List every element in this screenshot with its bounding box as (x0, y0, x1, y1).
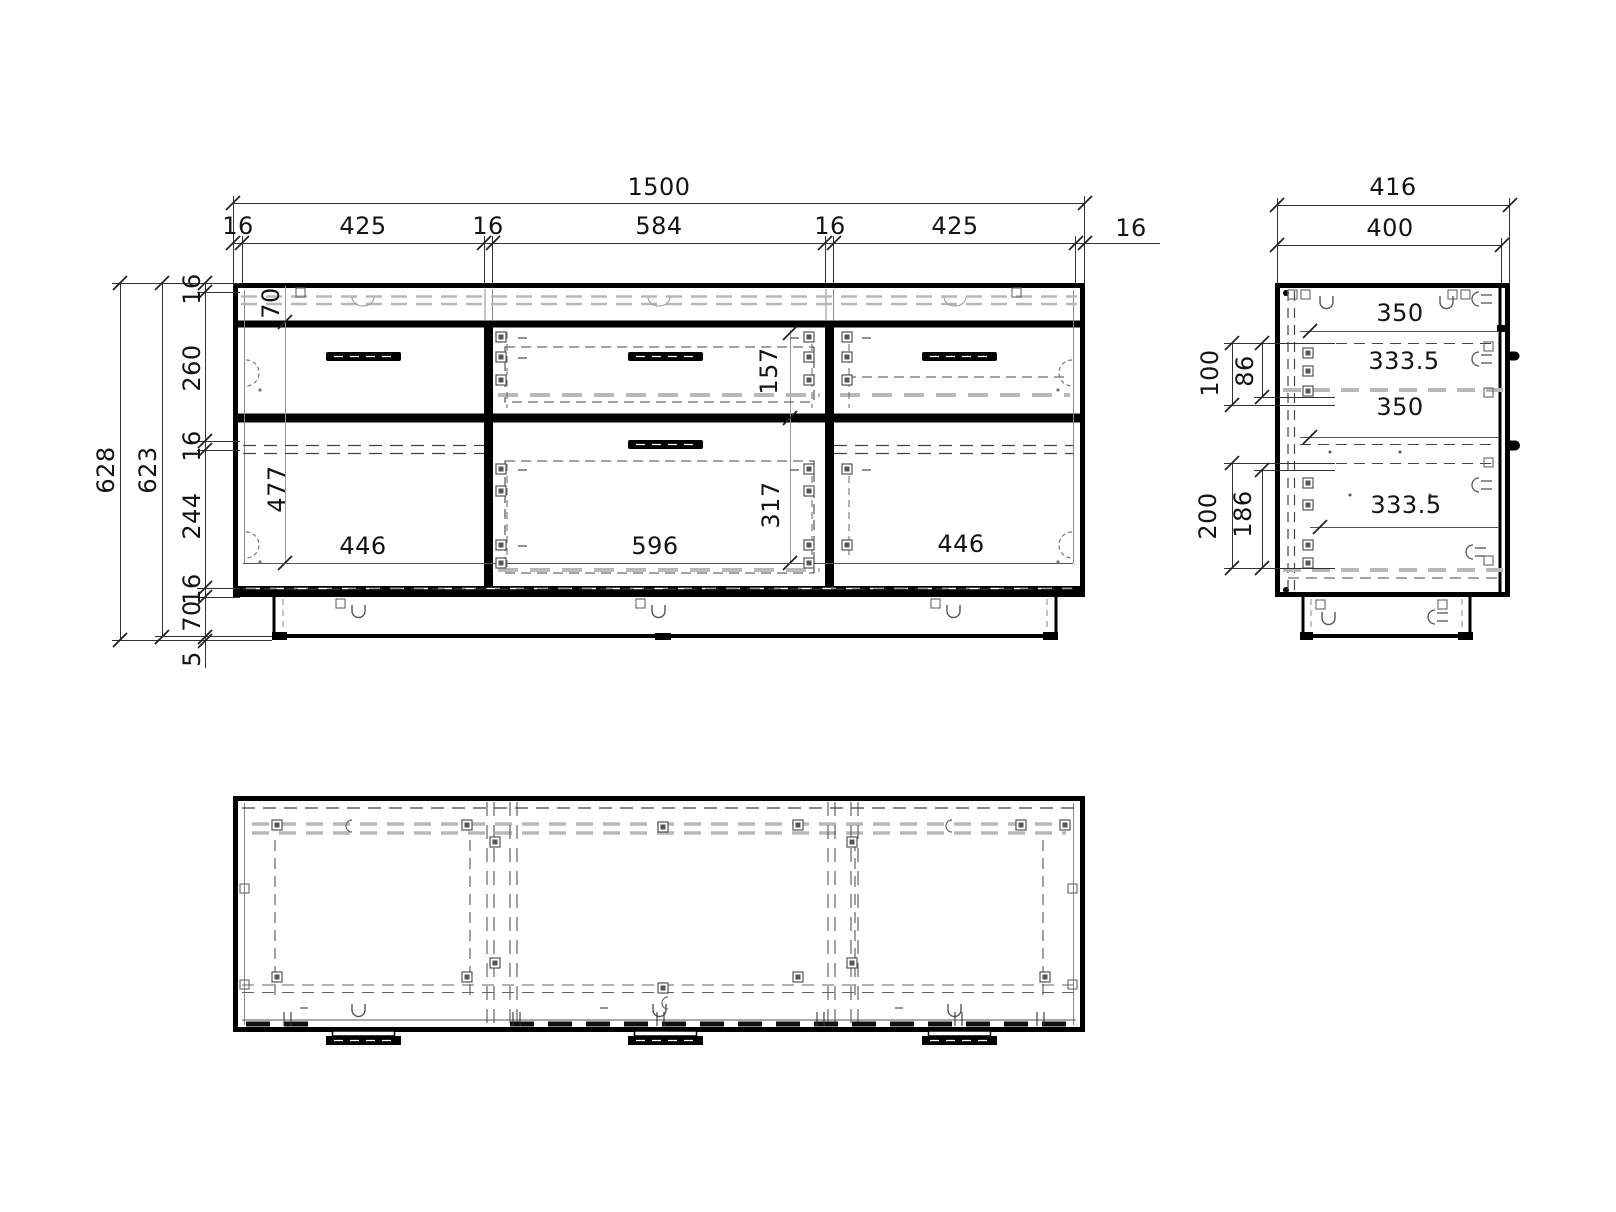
dim-front-seg-5: 425 (931, 214, 978, 238)
dim-front-hseg-2: 16 (180, 430, 204, 462)
dim-side-body-depth: 400 (1366, 216, 1413, 240)
side-plinth (1300, 597, 1473, 640)
dim-front-foot-height: 5 (180, 651, 204, 667)
furniture-technical-drawing: 1500 16 425 16 584 16 425 16 628 623 16 … (0, 0, 1616, 1212)
dim-front-top-drawer-h: 157 (757, 347, 781, 394)
dim-front-seg-3: 584 (635, 214, 682, 238)
dim-front-seg-1: 425 (339, 214, 386, 238)
side-view (1278, 286, 1521, 641)
dim-front-seg-0: 16 (222, 214, 254, 238)
dim-front-seg-2: 16 (472, 214, 504, 238)
dim-front-seg-6: 16 (1115, 216, 1147, 240)
dim-side-top-panel-depth: 350 (1376, 301, 1423, 325)
dim-side-bottom-drawer-offset: 200 (1196, 492, 1220, 539)
dim-front-hseg-3: 244 (180, 492, 204, 539)
dim-front-total-height: 628 (94, 446, 118, 493)
dim-front-hseg-5: 70 (180, 600, 204, 632)
front-plinth (272, 597, 1058, 640)
plan-view (236, 799, 1083, 1046)
side-knob-bottom (1508, 441, 1520, 451)
dim-front-top-rail: 70 (259, 287, 283, 319)
dim-side-top-drawer-offset: 100 (1198, 349, 1222, 396)
dim-front-left-door-w: 446 (339, 534, 386, 558)
dim-front-bottom-drawer-h: 317 (759, 481, 783, 528)
front-view (236, 286, 1083, 641)
dim-side-top-drawer-depth: 333.5 (1368, 349, 1439, 373)
dim-side-top-drawer-inner: 86 (1233, 355, 1257, 387)
dim-side-bottom-drawer-inner: 186 (1231, 490, 1255, 537)
dim-front-seg-4: 16 (814, 214, 846, 238)
side-knob-top (1508, 352, 1520, 361)
dim-front-body-height: 623 (136, 446, 160, 493)
dim-side-shelf-depth: 350 (1376, 395, 1423, 419)
dim-front-right-door-w: 446 (937, 532, 984, 556)
dim-front-total-width: 1500 (627, 175, 690, 199)
dim-side-total-depth: 416 (1369, 175, 1416, 199)
dim-side-bottom-drawer-depth: 333.5 (1370, 493, 1441, 517)
dim-front-drawer-w: 596 (631, 534, 678, 558)
dim-front-door-opening: 477 (265, 465, 289, 512)
dim-front-hseg-1: 260 (180, 344, 204, 391)
dim-front-hseg-0: 16 (180, 273, 204, 305)
plan-handles (326, 1031, 997, 1045)
